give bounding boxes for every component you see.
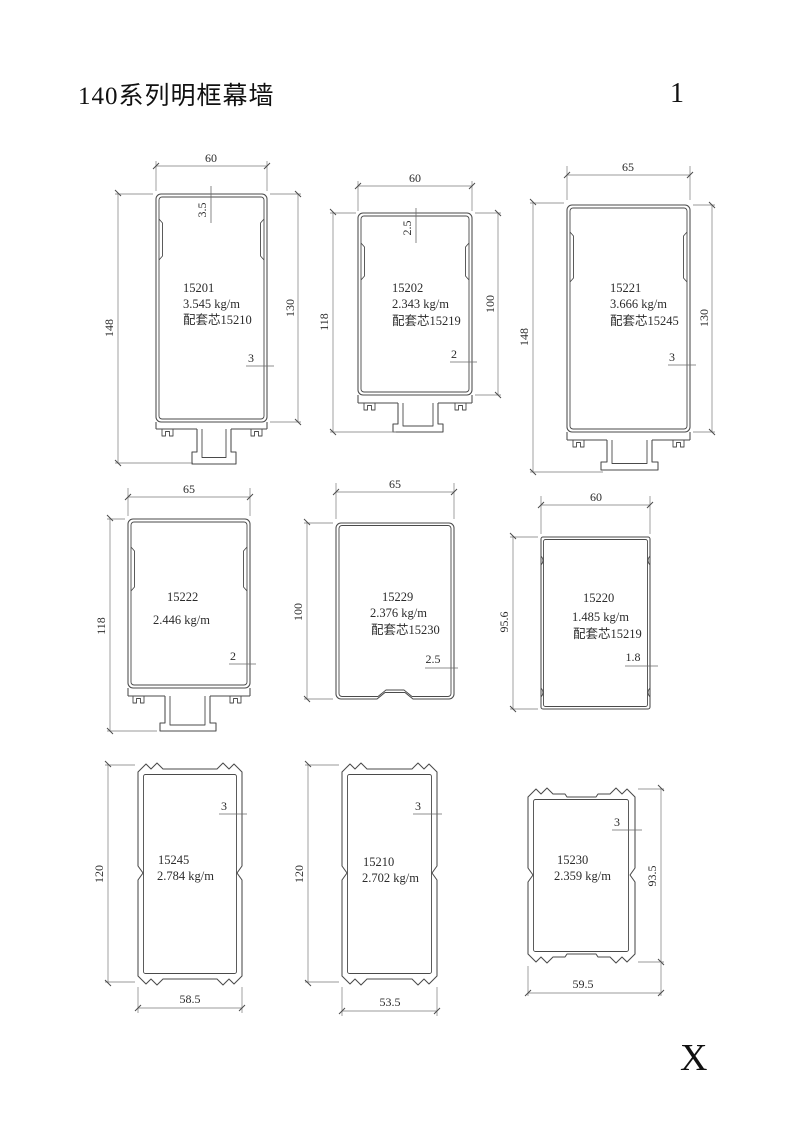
wall-side-label: 1.8 — [626, 650, 641, 664]
profile-id: 15202 — [392, 281, 423, 295]
dim-width-label: 65 — [183, 482, 195, 496]
dim-width-label: 60 — [409, 171, 421, 185]
profile-id: 15221 — [610, 281, 641, 295]
profile-weight: 2.784 kg/m — [157, 869, 214, 883]
profile-hooks — [364, 403, 466, 410]
profile-bottom-flange — [128, 688, 250, 696]
dimensions: 120 53.5 3 — [292, 764, 442, 1016]
profile-id: 15245 — [158, 853, 189, 867]
profile-neck-notches — [131, 547, 247, 591]
dim-total-height-label: 148 — [517, 328, 531, 346]
profile-weight: 1.485 kg/m — [572, 610, 629, 624]
profile-neck-notches — [361, 243, 469, 280]
profile-bottom-flange — [358, 395, 472, 403]
profile-core: 配套芯15219 — [573, 626, 642, 641]
profile-id: 15220 — [583, 591, 614, 605]
profile-weight: 3.666 kg/m — [610, 297, 667, 311]
profile-hooks — [133, 696, 241, 703]
profile-drawing-15230: 93.5 59.5 3 15230 2.359 kg/m — [528, 788, 664, 996]
wall-side-label: 2 — [230, 649, 236, 663]
profile-drawing-15210: 120 53.5 3 15210 2.702 kg/m — [292, 763, 442, 1016]
wall-side-label: 3 — [415, 799, 421, 813]
dim-height-label: 95.6 — [497, 612, 511, 633]
dim-height-label: 120 — [92, 865, 106, 883]
profiles-canvas: 60 148 130 3.5 3 15201 3.545 kg/m 配套芯152… — [0, 0, 800, 1131]
profile-info: 15221 3.666 kg/m 配套芯15245 — [610, 281, 679, 328]
profile-info: 15222 2.446 kg/m — [153, 590, 210, 627]
profile-bottom-channel-inner — [170, 696, 205, 725]
profile-weight: 2.343 kg/m — [392, 297, 449, 311]
profile-info: 15229 2.376 kg/m 配套芯15230 — [370, 590, 440, 637]
dim-width-label: 53.5 — [380, 995, 401, 1009]
dim-body-height-label: 100 — [483, 295, 497, 313]
profile-info: 15210 2.702 kg/m — [362, 855, 419, 885]
dim-height-label: 93.5 — [645, 866, 659, 887]
drawing-page: 140系列明框幕墙 1 X 60 148 — [0, 0, 800, 1131]
wall-side-label: 3 — [248, 351, 254, 365]
dim-body-height-label: 130 — [697, 309, 711, 327]
profile-hooks — [573, 440, 684, 447]
profile-hooks — [162, 429, 262, 436]
dim-width-label: 65 — [389, 477, 401, 491]
profile-info: 15230 2.359 kg/m — [554, 853, 611, 883]
wall-side-label: 3 — [221, 799, 227, 813]
profile-info: 15220 1.485 kg/m 配套芯15219 — [572, 591, 642, 641]
profile-id: 15210 — [363, 855, 394, 869]
wall-side-label: 2.5 — [426, 652, 441, 666]
profile-neck-notches — [159, 219, 264, 260]
profile-info: 15201 3.545 kg/m 配套芯15210 — [183, 281, 252, 327]
wall-top-label: 3.5 — [195, 203, 209, 218]
dim-body-height-label: 130 — [283, 299, 297, 317]
profile-info: 15245 2.784 kg/m — [157, 853, 214, 883]
dimensions: 65 100 2.5 — [291, 477, 458, 699]
profile-bottom-channel — [601, 440, 658, 470]
profile-neck-notches — [570, 232, 687, 282]
profile-core: 配套芯15245 — [610, 313, 679, 328]
profile-drawing-15201: 60 148 130 3.5 3 15201 3.545 kg/m 配套芯152… — [102, 151, 301, 464]
dimensions: 60 95.6 1.8 — [497, 490, 658, 709]
profile-bottom-flange — [567, 432, 690, 440]
profile-info: 15202 2.343 kg/m 配套芯15219 — [392, 281, 461, 328]
profile-drawing-15221: 65 148 130 3 15221 3.666 kg/m 配套芯15245 — [517, 160, 715, 472]
dim-total-height-label: 148 — [102, 319, 116, 337]
profile-drawing-15229: 65 100 2.5 15229 2.376 kg/m 配套芯15230 — [291, 477, 458, 699]
profile-id: 15229 — [382, 590, 413, 604]
profile-bottom-channel — [160, 696, 216, 731]
profile-bottom-channel-inner — [403, 403, 433, 426]
profile-drawing-15202: 60 118 100 2.5 2 15202 2.343 kg/m 配套芯152… — [317, 171, 501, 432]
dim-width-label: 60 — [205, 151, 217, 165]
dimensions: 93.5 59.5 3 — [528, 788, 664, 996]
profile-weight: 2.376 kg/m — [370, 606, 427, 620]
dimensions: 120 58.5 3 — [92, 764, 247, 1013]
profile-id: 15230 — [557, 853, 588, 867]
dim-height-label: 120 — [292, 865, 306, 883]
profile-bottom-channel — [393, 403, 443, 432]
dim-width-label: 65 — [622, 160, 634, 174]
profile-core: 配套芯15210 — [183, 312, 252, 327]
dim-width-label: 58.5 — [180, 992, 201, 1006]
profile-weight: 3.545 kg/m — [183, 297, 240, 311]
wall-side-label: 2 — [451, 347, 457, 361]
profile-drawing-15245: 120 58.5 3 15245 2.784 kg/m — [92, 763, 247, 1013]
dim-total-height-label: 118 — [317, 313, 331, 331]
profile-weight: 2.702 kg/m — [362, 871, 419, 885]
dim-width-label: 59.5 — [573, 977, 594, 991]
profile-bottom-channel-inner — [202, 429, 226, 458]
profile-bottom-channel-inner — [612, 440, 647, 464]
profile-drawing-15222: 65 118 2 15222 2.446 kg/m — [94, 482, 256, 731]
profile-weight: 2.359 kg/m — [554, 869, 611, 883]
profile-id: 15201 — [183, 281, 214, 295]
profile-drawing-15220: 60 95.6 1.8 15220 1.485 kg/m 配套芯15219 — [497, 490, 658, 709]
wall-side-label: 3 — [669, 350, 675, 364]
dim-height-label: 100 — [291, 603, 305, 621]
profile-weight: 2.446 kg/m — [153, 613, 210, 627]
wall-top-label: 2.5 — [400, 221, 414, 236]
profile-core: 配套芯15219 — [392, 313, 461, 328]
wall-side-label: 3 — [614, 815, 620, 829]
dim-total-height-label: 118 — [94, 617, 108, 635]
profile-bottom-channel — [192, 429, 236, 464]
profile-id: 15222 — [167, 590, 198, 604]
dim-width-label: 60 — [590, 490, 602, 504]
profile-core: 配套芯15230 — [371, 622, 440, 637]
profile-bottom-flange — [156, 422, 267, 429]
